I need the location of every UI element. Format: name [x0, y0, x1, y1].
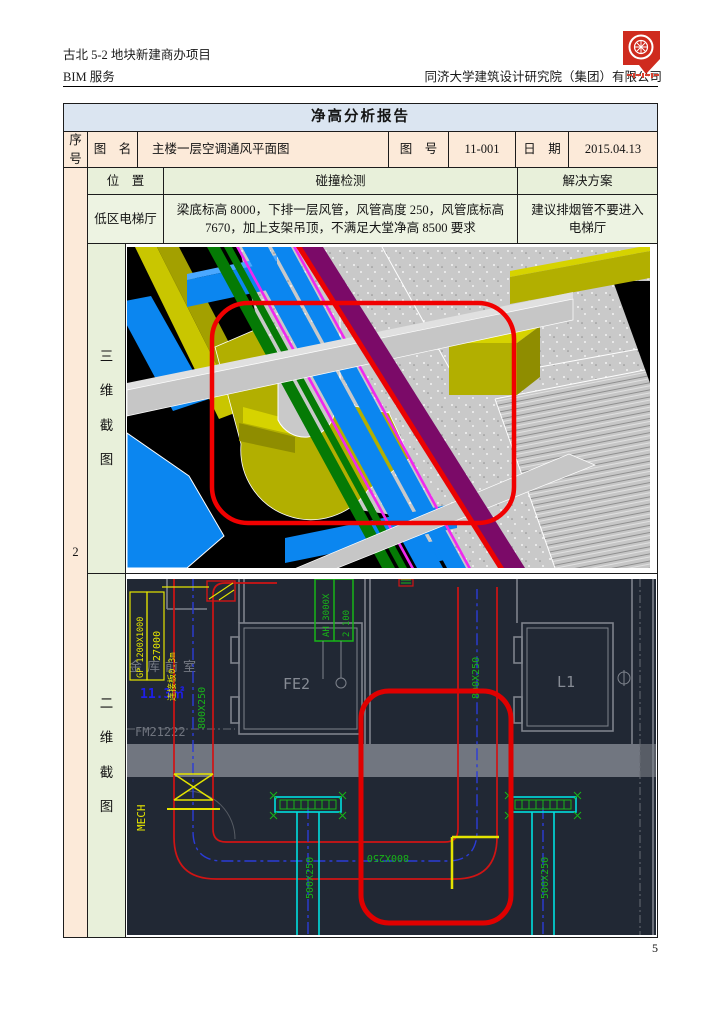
fig-name-label-cell: 图 名 — [87, 131, 138, 168]
view3d-image-cell — [125, 243, 658, 574]
slab-note: 连接板0.3m — [166, 652, 178, 701]
header-divider — [63, 86, 658, 87]
report-title: 净高分析报告 — [63, 103, 658, 132]
door-code-label: FM21222 — [135, 725, 186, 739]
bim-3d-view — [127, 247, 650, 568]
view3d-label-cell: 三维截图 — [87, 243, 126, 574]
view2d-label-cell: 二维截图 — [87, 573, 126, 938]
dim-27000: 27000 — [152, 631, 163, 661]
yellow-box-right — [449, 343, 517, 395]
seq-header-cell: 序号 — [63, 131, 88, 168]
fig-no-cell: 11-001 — [448, 131, 516, 168]
location-label-cell: 位 置 — [87, 167, 164, 195]
collision-cell: 梁底标高 8000，下排一层风管，风管高度 250，风管底标高 7670，加上支… — [163, 194, 518, 244]
seq-value-cell: 2 — [63, 167, 88, 938]
report-page: 古北 5-2 地块新建商办项目 BIM 服务 同济大学建筑设计研究院（集团）有限… — [0, 0, 724, 1024]
collision-label-cell: 碰撞检测 — [163, 167, 518, 195]
view3d-label: 三维截图 — [99, 340, 114, 478]
fig-no-label-cell: 图 号 — [388, 131, 449, 168]
location-cell: 低区电梯厅 — [87, 194, 164, 244]
mech-label: MECH — [135, 805, 148, 832]
ahu-label-2: 2 100 — [342, 610, 352, 637]
date-label-cell: 日 期 — [515, 131, 569, 168]
gp-label: GP 1200X1000 — [136, 617, 146, 678]
company-logo-graphic — [620, 28, 664, 84]
corridor-band — [127, 744, 640, 777]
duct-size-800-mid: 800X250 — [367, 852, 409, 863]
view2d-label: 二维截图 — [99, 687, 114, 825]
duct-size-800-left: 800X250 — [197, 687, 208, 729]
view2d-image-cell: 金库前室 FM21222 FE2 L1 11.3㎡ AH 3000X 2 100 — [125, 573, 658, 938]
service-title: BIM 服务 — [63, 66, 115, 85]
ahu-label-1: AH 3000X — [322, 593, 332, 637]
cad-2d-view: 金库前室 FM21222 FE2 L1 11.3㎡ AH 3000X 2 100 — [127, 579, 656, 935]
duct-size-500-left: 500X250 — [305, 857, 316, 899]
duct-size-500-right: 500X250 — [540, 857, 551, 899]
solution-label-cell: 解决方案 — [517, 167, 658, 195]
solution-cell: 建议排烟管不要进入电梯厅 — [517, 194, 658, 244]
fig-name-cell: 主楼一层空调通风平面图 — [137, 131, 389, 168]
project-title: 古北 5-2 地块新建商办项目 — [63, 44, 211, 63]
seq-header-label: 序号 — [68, 131, 83, 169]
room-fe2-label: FE2 — [283, 675, 310, 693]
company-logo — [620, 28, 664, 84]
page-number: 5 — [652, 941, 658, 956]
date-cell: 2015.04.13 — [568, 131, 658, 168]
room-l1-label: L1 — [557, 673, 575, 691]
